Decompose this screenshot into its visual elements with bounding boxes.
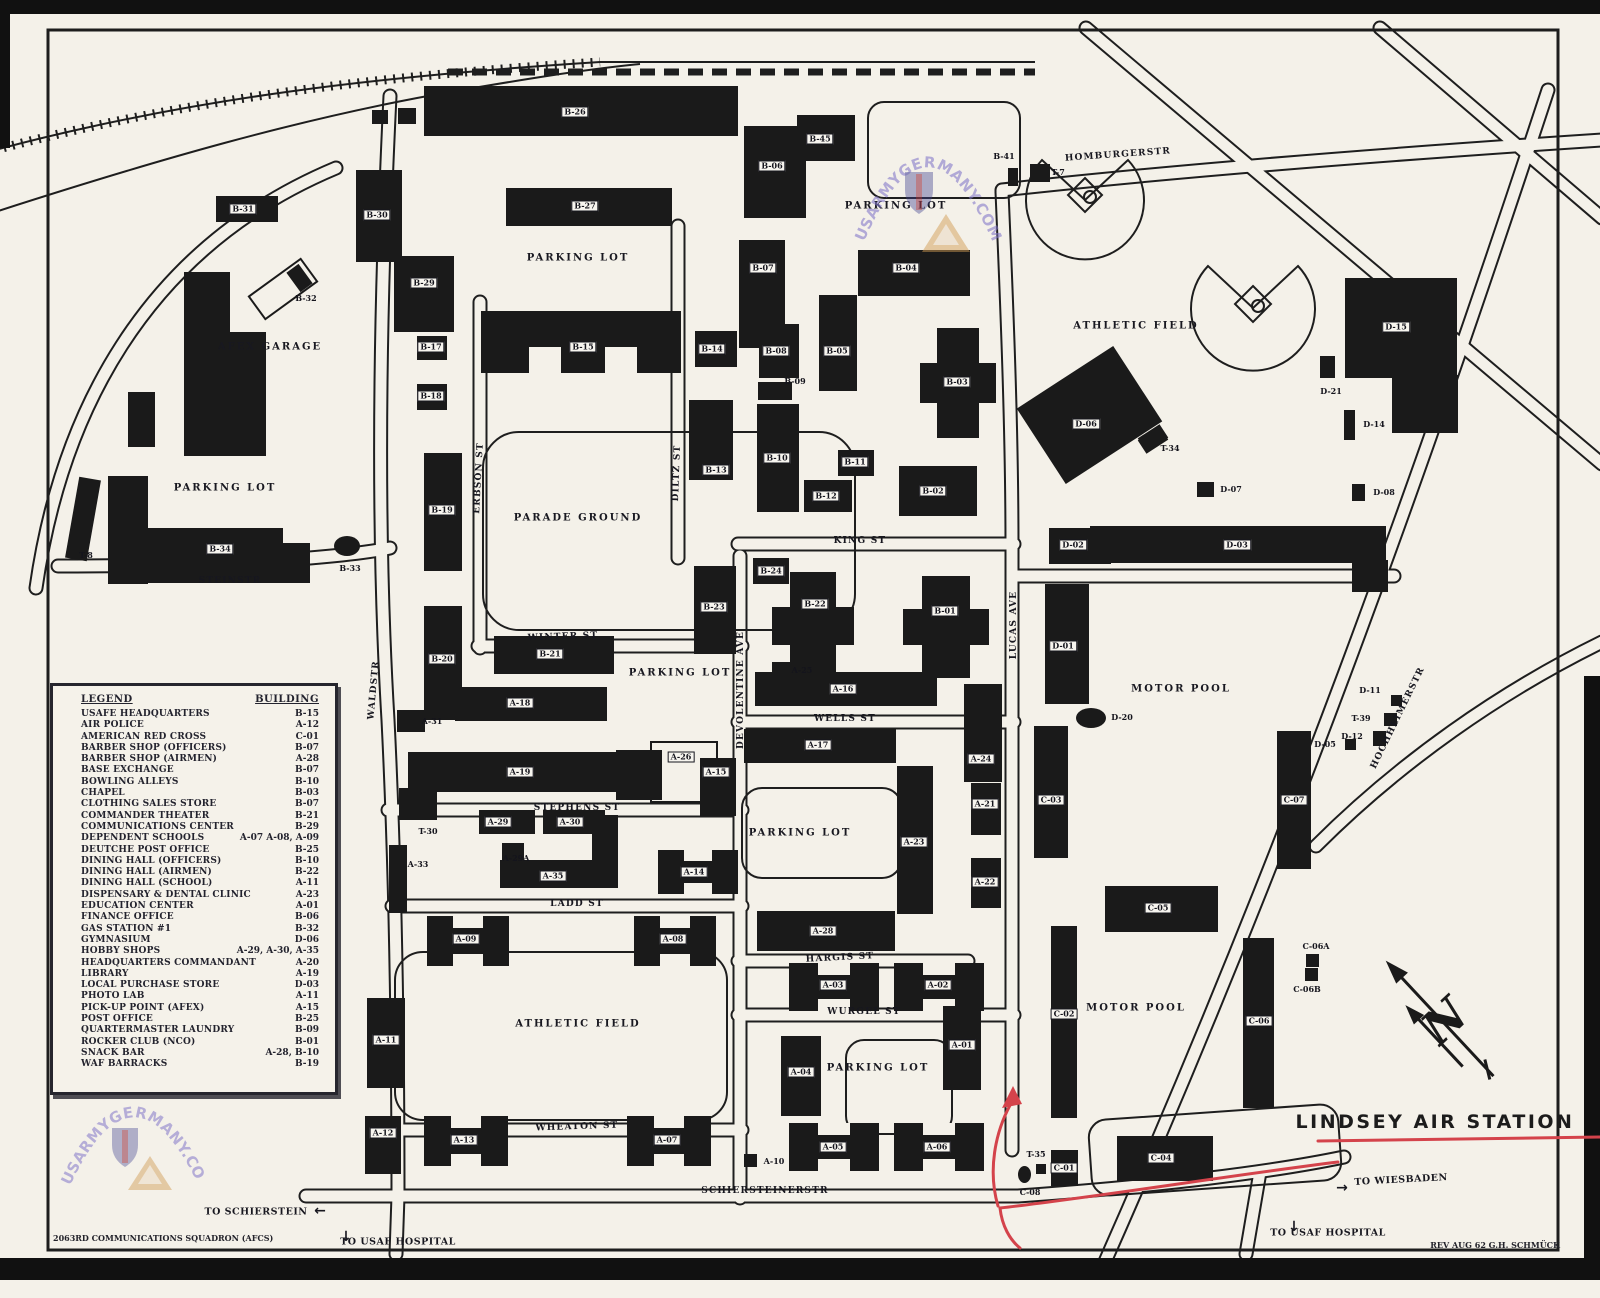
legend-building-code: B-25	[295, 1014, 319, 1025]
legend-facility-name: COMMANDER THEATER	[81, 811, 209, 822]
building-d-08	[1352, 484, 1365, 501]
legend-facility-name: PHOTO LAB	[81, 991, 145, 1002]
building-b-41	[1008, 168, 1018, 186]
legend-row: ROCKER CLUB (NCO)B-01	[53, 1037, 335, 1048]
building-label-b-24: B-24	[757, 566, 784, 577]
legend-building-code: A-20	[296, 958, 319, 969]
legend-building-code: A-28	[296, 754, 319, 765]
direction-note: TO USAF HOSPITAL	[340, 1237, 456, 1248]
legend-building-code: A-11	[296, 878, 319, 889]
building-label-b-34: B-34	[206, 544, 233, 555]
legend-row: PHOTO LABA-11	[53, 991, 335, 1002]
legend-row: LIBRARYA-19	[53, 969, 335, 980]
building-d-07	[1197, 482, 1214, 497]
legend-row: WAF BARRACKSB-19	[53, 1059, 335, 1070]
building-label-c-01: C-01	[1051, 1163, 1078, 1174]
legend-row: HEADQUARTERS COMMANDANTA-20	[53, 958, 335, 969]
legend-facility-name: BASE EXCHANGE	[81, 765, 174, 776]
building-block	[280, 543, 310, 583]
building-label-a-25: A-25	[792, 665, 813, 675]
area-label-parking-lot: PARKING LOT	[629, 668, 732, 679]
legend-building-code: B-03	[295, 788, 319, 799]
building-label-a-05: A-05	[820, 1142, 847, 1153]
legend-facility-name: PICK-UP POINT (AFEX)	[81, 1003, 204, 1014]
legend-building-code: C-01	[296, 732, 319, 743]
legend-building-code: B-10	[295, 856, 319, 867]
legend-building-code: B-19	[295, 1059, 319, 1070]
building-block	[128, 392, 155, 447]
legend-facility-name: DISPENSARY & DENTAL CLINIC	[81, 890, 251, 901]
legend-facility-name: DINING HALL (OFFICERS)	[81, 856, 222, 867]
building-label-b-20: B-20	[428, 654, 455, 665]
legend-facility-name: GAS STATION #1	[81, 924, 171, 935]
legend-building-code: B-07	[295, 743, 319, 754]
street-label-steinstr: STEINSTR	[199, 576, 262, 586]
building-label-b-19: B-19	[428, 505, 455, 516]
direction-note: TO SCHIERSTEIN	[205, 1207, 308, 1218]
building-label-a-31: A-31	[422, 716, 443, 726]
legend-building-code: A-01	[296, 901, 319, 912]
legend-row: LOCAL PURCHASE STORED-03	[53, 980, 335, 991]
building-label-c-06: C-06	[1246, 1016, 1273, 1027]
legend-row: BOWLING ALLEYSB-10	[53, 777, 335, 788]
building-b-22	[790, 572, 836, 680]
building-label-d-12: D-12	[1341, 731, 1363, 741]
photo-edge-left	[0, 0, 10, 148]
legend-building-code: B-10	[295, 777, 319, 788]
building-label-b-26: B-26	[561, 107, 588, 118]
building-label-t-35: T-35	[1026, 1149, 1045, 1159]
legend-building-code: A-23	[296, 890, 319, 901]
legend-facility-name: GYMNASIUM	[81, 935, 151, 946]
legend-row: CHAPELB-03	[53, 788, 335, 799]
building-label-b-04: B-04	[892, 263, 919, 274]
area-label-athletic-field: ATHLETIC FIELD	[515, 1019, 640, 1030]
building-label-b-30: B-30	[363, 210, 390, 221]
legend-facility-name: CHAPEL	[81, 788, 125, 799]
building-t-30	[399, 788, 437, 820]
legend-row: QUARTERMASTER LAUNDRYB-09	[53, 1025, 335, 1036]
area-label-motor-pool: MOTOR POOL	[1131, 684, 1231, 695]
building-label-b-18: B-18	[417, 391, 444, 402]
legend-building-code: B-32	[295, 924, 319, 935]
building-label-a-14: A-14	[681, 867, 708, 878]
legend-row: BASE EXCHANGEB-07	[53, 765, 335, 776]
building-label-b-21: B-21	[536, 649, 563, 660]
legend-row: DISPENSARY & DENTAL CLINICA-23	[53, 890, 335, 901]
legend-building-code: A-12	[296, 720, 319, 731]
building-label-b-23: B-23	[700, 602, 727, 613]
building-label-b-02: B-02	[919, 486, 946, 497]
legend-title: LEGEND	[81, 694, 133, 705]
building-label-a-17: A-17	[805, 740, 832, 751]
legend-facility-name: DINING HALL (AIRMEN)	[81, 867, 212, 878]
street-label-stephens-st: STEPHENS ST	[534, 803, 620, 813]
legend-row: COMMANDER THEATERB-21	[53, 811, 335, 822]
legend-facility-name: AIR POLICE	[81, 720, 144, 731]
building-label-a-22: A-22	[972, 877, 999, 888]
building-b-01	[922, 576, 970, 678]
building-label-a-13: A-13	[451, 1135, 478, 1146]
building-label-b-27: B-27	[571, 201, 598, 212]
legend-row: GYMNASIUMD-06	[53, 935, 335, 946]
legend-row: BARBER SHOP (AIRMEN)A-28	[53, 754, 335, 765]
building-label-b-33: B-33	[339, 563, 360, 573]
legend-facility-name: BARBER SHOP (OFFICERS)	[81, 743, 227, 754]
legend-building-code: A-15	[296, 1003, 319, 1014]
building-b-34	[145, 528, 283, 583]
building-label-b-06: B-06	[758, 161, 785, 172]
building-c-03	[1034, 726, 1068, 858]
legend-header: LEGEND BUILDING	[53, 686, 335, 709]
building-label-c-02: C-02	[1051, 1009, 1078, 1020]
building-label-d-08: D-08	[1373, 487, 1395, 497]
building-label-b-31: B-31	[229, 204, 256, 215]
direction-arrow-icon: ↓	[340, 1229, 352, 1245]
area-label-parking-lot: PARKING LOT	[174, 483, 277, 494]
building-label-t-7: T-7	[1051, 167, 1065, 177]
area-label-afex-garage: AFEX GARAGE	[218, 342, 322, 353]
area-label-athletic-field: ATHLETIC FIELD	[1073, 321, 1198, 332]
building-label-a-19: A-19	[507, 767, 534, 778]
legend-building-code: A-07 A-08, A-09	[240, 833, 319, 844]
building-label-b-17: B-17	[417, 342, 444, 353]
legend-facility-name: DEUTCHE POST OFFICE	[81, 845, 209, 856]
building-label-a-33: A-33	[408, 859, 429, 869]
legend-facility-name: COMMUNICATIONS CENTER	[81, 822, 234, 833]
building-label-a-15: A-15	[703, 767, 730, 778]
legend-facility-name: WAF BARRACKS	[81, 1059, 167, 1070]
legend-facility-name: CLOTHING SALES STORE	[81, 799, 216, 810]
area-label-parade-ground: PARADE GROUND	[514, 513, 643, 524]
building-label-a-26: A-26	[668, 752, 695, 763]
building-label-c-04: C-04	[1148, 1153, 1175, 1164]
building-label-b-05: B-05	[823, 346, 850, 357]
building-block	[616, 750, 662, 800]
building-label-a-24: A-24	[968, 754, 995, 765]
legend-facility-name: LOCAL PURCHASE STORE	[81, 980, 219, 991]
building-block	[1392, 375, 1458, 433]
legend-building-code: D-06	[295, 935, 319, 946]
building-label-a-12: A-12	[370, 1128, 397, 1139]
legend-building-code: B-21	[295, 811, 319, 822]
building-label-d-01: D-01	[1049, 641, 1077, 652]
revision-credit: REV AUG 62 G.H. SCHMÜCK	[1430, 1240, 1560, 1250]
building-t-35	[1036, 1164, 1046, 1174]
lindsey-air-station-map: LEGEND BUILDING USAFE HEADQUARTERSB-15AI…	[0, 0, 1600, 1298]
building-c-08	[1018, 1166, 1031, 1183]
street-label-schiersteinerstr: SCHIERSTEINERSTR	[701, 1186, 828, 1196]
building-label-b-11: B-11	[841, 457, 868, 468]
photo-edge-right	[1584, 676, 1600, 1258]
building-block	[592, 815, 618, 883]
direction-arrow-icon: ←	[314, 1203, 326, 1219]
building-label-a-18: A-18	[507, 698, 534, 709]
building-label-b-07: B-07	[749, 263, 776, 274]
building-label-a-06: A-06	[924, 1142, 951, 1153]
legend-row: USAFE HEADQUARTERSB-15	[53, 709, 335, 720]
legend-facility-name: AMERICAN RED CROSS	[81, 732, 206, 743]
building-label-d-14: D-14	[1363, 419, 1385, 429]
building-b-29	[394, 256, 454, 332]
legend-facility-name: DINING HALL (SCHOOL)	[81, 878, 212, 889]
building-label-a-23: A-23	[901, 837, 928, 848]
street-label-diltz-st: DILTZ ST	[671, 444, 683, 501]
legend-row: BARBER SHOP (OFFICERS)B-07	[53, 743, 335, 754]
legend-building-code: B-15	[295, 709, 319, 720]
building-a-12	[365, 1116, 401, 1174]
legend-facility-name: QUARTERMASTER LAUNDRY	[81, 1025, 234, 1036]
legend-rows: USAFE HEADQUARTERSB-15AIR POLICEA-12AMER…	[53, 709, 335, 1071]
map-title: LINDSEY AIR STATION	[1296, 1111, 1575, 1133]
squadron-credit: 2063RD COMMUNICATIONS SQUADRON (AFCS)	[53, 1233, 273, 1243]
building-label-b-01: B-01	[931, 606, 958, 617]
legend-row: FINANCE OFFICEB-06	[53, 912, 335, 923]
legend-building-code: B-06	[295, 912, 319, 923]
street-label-lucas-ave: LUCAS AVE	[1009, 591, 1019, 659]
building-label-d-06: D-06	[1072, 419, 1100, 430]
building-label-a-08: A-08	[660, 934, 687, 945]
area-label-parking-lot: PARKING LOT	[527, 253, 630, 264]
building-label-a-29a: A-29A	[503, 853, 530, 863]
legend-building-code: B-09	[295, 1025, 319, 1036]
building-label-b-45: B-45	[806, 134, 833, 145]
legend-box: LEGEND BUILDING USAFE HEADQUARTERSB-15AI…	[50, 683, 338, 1095]
legend-row: AMERICAN RED CROSSC-01	[53, 732, 335, 743]
building-d-20	[1076, 708, 1106, 728]
building-label-c-06b: C-06B	[1293, 984, 1321, 994]
legend-building-code: A-28, B-10	[265, 1048, 319, 1059]
legend-row: DEUTCHE POST OFFICEB-25	[53, 845, 335, 856]
building-a-24	[964, 684, 1002, 782]
building-label-b-09: B-09	[784, 376, 805, 386]
building-label-d-05: D-05	[1314, 739, 1336, 749]
legend-row: POST OFFICEB-25	[53, 1014, 335, 1025]
legend-building-header: BUILDING	[255, 694, 319, 705]
legend-building-code: D-03	[295, 980, 319, 991]
building-label-c-05: C-05	[1145, 903, 1172, 914]
building-label-a-01: A-01	[949, 1040, 976, 1051]
building-label-t-39: T-39	[1351, 713, 1370, 723]
building-label-a-21: A-21	[972, 799, 999, 810]
legend-facility-name: BARBER SHOP (AIRMEN)	[81, 754, 217, 765]
building-b-33	[334, 536, 360, 556]
building-label-c-07: C-07	[1281, 795, 1308, 806]
building-label-c-06a: C-06A	[1302, 941, 1329, 951]
legend-facility-name: BOWLING ALLEYS	[81, 777, 179, 788]
legend-row: DINING HALL (AIRMEN)B-22	[53, 867, 335, 878]
building-label-b-13: B-13	[702, 465, 729, 476]
building-label-a-02: A-02	[925, 980, 952, 991]
legend-building-code: B-07	[295, 799, 319, 810]
building-label-c-03: C-03	[1038, 795, 1065, 806]
building-label-a-04: A-04	[788, 1067, 815, 1078]
legend-row: DINING HALL (SCHOOL)A-11	[53, 878, 335, 889]
building-label-b-29: B-29	[410, 278, 437, 289]
legend-row: PICK-UP POINT (AFEX)A-15	[53, 1003, 335, 1014]
photo-edge-bottom	[0, 1258, 1600, 1280]
building-label-d-15: D-15	[1382, 322, 1410, 333]
building-block	[108, 476, 148, 584]
building-t-7	[1030, 164, 1050, 182]
building-label-c-08: C-08	[1020, 1187, 1041, 1197]
area-label-parking-lot: PARKING LOT	[845, 201, 948, 212]
building-label-d-02: D-02	[1059, 540, 1087, 551]
building-label-b-41: B-41	[993, 151, 1014, 161]
building-label-a-29: A-29	[485, 817, 512, 828]
building-label-b-10: B-10	[763, 453, 790, 464]
direction-arrow-icon: →	[1336, 1180, 1348, 1196]
building-label-a-10: A-10	[764, 1156, 785, 1166]
building-label-b-22: B-22	[801, 599, 828, 610]
building-label-a-30: A-30	[557, 817, 584, 828]
legend-row: GAS STATION #1B-32	[53, 924, 335, 935]
building-a-33	[389, 845, 407, 913]
building-label-b-12: B-12	[812, 491, 839, 502]
parking-outline-south	[846, 1040, 952, 1134]
legend-building-code: A-29, A-30, A-35	[237, 946, 319, 957]
building-label-a-35: A-35	[540, 871, 567, 882]
building-label-d-21: D-21	[1320, 386, 1342, 396]
parking-outline-north	[868, 102, 1020, 198]
building-label-b-03: B-03	[943, 377, 970, 388]
legend-building-code: A-11	[296, 991, 319, 1002]
street-label-king-st: KING ST	[834, 536, 887, 546]
building-a-10	[744, 1154, 757, 1167]
legend-row: COMMUNICATIONS CENTERB-29	[53, 822, 335, 833]
building-label-d-11: D-11	[1359, 685, 1381, 695]
building-label-a-16: A-16	[830, 684, 857, 695]
building-label-a-28: A-28	[810, 926, 837, 937]
building-block	[398, 108, 416, 124]
legend-facility-name: DEPENDENT SCHOOLS	[81, 833, 204, 844]
area-label-motor-pool: MOTOR POOL	[1086, 1003, 1186, 1014]
legend-row: EDUCATION CENTERA-01	[53, 901, 335, 912]
street-label-devolentine-ave: DEVOLENTINE AVE	[736, 631, 746, 749]
legend-row: CLOTHING SALES STOREB-07	[53, 799, 335, 810]
building-label-t-8: T-8	[79, 550, 93, 560]
legend-building-code: B-01	[295, 1037, 319, 1048]
building-d-14	[1344, 410, 1355, 440]
legend-building-code: A-19	[296, 969, 319, 980]
building-label-a-03: A-03	[820, 980, 847, 991]
direction-arrow-icon: ↓	[1288, 1219, 1300, 1235]
legend-facility-name: USAFE HEADQUARTERS	[81, 709, 210, 720]
legend-facility-name: SNACK BAR	[81, 1048, 145, 1059]
street-label-ladd-st: LADD ST	[550, 899, 604, 909]
legend-facility-name: POST OFFICE	[81, 1014, 153, 1025]
building-label-d-20: D-20	[1111, 712, 1133, 722]
legend-building-code: B-07	[295, 765, 319, 776]
building-label-t-34: T-34	[1160, 443, 1179, 453]
legend-facility-name: HEADQUARTERS COMMANDANT	[81, 958, 256, 969]
building-c-06b	[1305, 968, 1318, 981]
building-label-a-11: A-11	[373, 1035, 400, 1046]
legend-building-code: B-22	[295, 867, 319, 878]
building-d-21	[1320, 356, 1335, 378]
building-label-b-08: B-08	[762, 346, 789, 357]
building-label-d-03: D-03	[1223, 540, 1251, 551]
street-label-wells-st: WELLS ST	[814, 714, 876, 724]
legend-facility-name: LIBRARY	[81, 969, 129, 980]
legend-building-code: B-29	[295, 822, 319, 833]
building-label-d-07: D-07	[1220, 484, 1242, 494]
building-label-b-14: B-14	[698, 344, 725, 355]
building-label-t-30: T-30	[418, 826, 437, 836]
building-label-a-07: A-07	[654, 1135, 681, 1146]
area-label-parking-lot: PARKING LOT	[827, 1063, 930, 1074]
legend-facility-name: EDUCATION CENTER	[81, 901, 194, 912]
area-label-parking-lot: PARKING LOT	[749, 828, 852, 839]
street-label-wurgel-st: WURGEL ST	[827, 1007, 900, 1017]
building-block	[1352, 560, 1388, 592]
building-c-06a	[1306, 954, 1319, 967]
legend-row: AIR POLICEA-12	[53, 720, 335, 731]
legend-row: SNACK BARA-28, B-10	[53, 1048, 335, 1059]
legend-facility-name: HOBBY SHOPS	[81, 946, 160, 957]
legend-row: DINING HALL (OFFICERS)B-10	[53, 856, 335, 867]
building-block	[372, 110, 388, 124]
legend-facility-name: ROCKER CLUB (NCO)	[81, 1037, 196, 1048]
legend-row: HOBBY SHOPSA-29, A-30, A-35	[53, 946, 335, 957]
legend-row: DEPENDENT SCHOOLSA-07 A-08, A-09	[53, 833, 335, 844]
photo-edge-top	[0, 0, 1600, 14]
legend-facility-name: FINANCE OFFICE	[81, 912, 174, 923]
athletic-field-outline	[395, 952, 727, 1120]
building-label-b-15: B-15	[569, 342, 596, 353]
building-b-05	[819, 295, 857, 391]
legend-building-code: B-25	[295, 845, 319, 856]
building-c-02	[1051, 926, 1077, 1118]
building-label-b-32: B-32	[295, 293, 316, 303]
building-label-a-09: A-09	[453, 934, 480, 945]
